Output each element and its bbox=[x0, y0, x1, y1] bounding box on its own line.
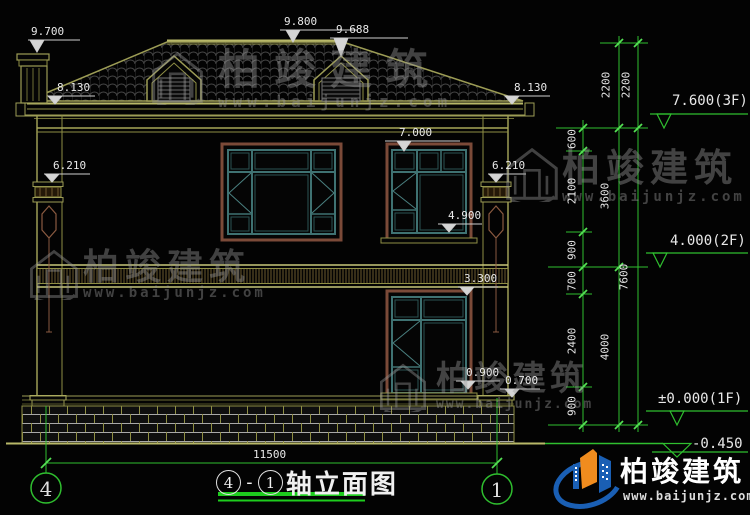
elevation-label-pilaster-l: 6.210 bbox=[53, 160, 86, 171]
axis-bubble-right: 1 bbox=[491, 478, 504, 502]
drawing-title: 4 - 1 轴立面图 bbox=[216, 464, 398, 501]
level-label-1f: ±0.000(1F) bbox=[658, 392, 742, 406]
roof bbox=[16, 41, 534, 119]
window-2f-right bbox=[381, 144, 477, 243]
floor-band bbox=[37, 265, 508, 287]
brand-name: 柏竣建筑 bbox=[620, 450, 744, 490]
elevation-label-w2-head: 7.000 bbox=[399, 127, 432, 138]
dim-total-7600: 7600 bbox=[619, 264, 630, 291]
dim-total-2200: 2200 bbox=[621, 72, 632, 99]
brand-logo-icon bbox=[550, 449, 626, 514]
dim-floor-3600: 3600 bbox=[600, 183, 611, 210]
level-label-3f: 7.600(3F) bbox=[672, 94, 748, 108]
elevation-label-eave-left: 8.130 bbox=[57, 82, 90, 93]
dim-fine-900b: 900 bbox=[567, 396, 578, 416]
axis-bubble-left: 4 bbox=[40, 477, 53, 501]
plinth bbox=[6, 396, 663, 444]
dimension-chains-right bbox=[548, 36, 648, 432]
dim-overall-width: 11500 bbox=[253, 449, 286, 460]
title-axis-start: 4 bbox=[216, 470, 241, 495]
brand-url: www.baijunjz.com bbox=[623, 489, 750, 503]
title-text: 轴立面图 bbox=[286, 464, 398, 501]
elevation-label-w1-head: 3.300 bbox=[464, 273, 497, 284]
title-dash: - bbox=[244, 472, 255, 493]
cad-linework bbox=[0, 0, 750, 515]
title-axis-end: 1 bbox=[258, 470, 283, 495]
level-label-2f: 4.000(2F) bbox=[670, 234, 746, 248]
dim-fine-600: 600 bbox=[567, 129, 578, 149]
dim-floor-4000: 4000 bbox=[600, 334, 611, 361]
elevation-label-chimney: 9.700 bbox=[31, 26, 64, 37]
level-label-ground: -0.450 bbox=[692, 437, 743, 451]
elevation-label-pedestal: 0.700 bbox=[505, 375, 538, 386]
elevation-label-eave-right: 8.130 bbox=[514, 82, 547, 93]
dim-fine-2400: 2400 bbox=[567, 328, 578, 355]
dim-fine-700: 700 bbox=[567, 271, 578, 291]
elevation-label-w1-sill: 0.900 bbox=[466, 367, 499, 378]
elevation-label-pilaster-r: 6.210 bbox=[492, 160, 525, 171]
window-2f-center bbox=[222, 144, 341, 240]
elevation-drawing-canvas: 柏竣建筑 www.baijunjz.com 柏竣建筑 www.baijunjz.… bbox=[0, 0, 750, 515]
elevation-label-w2-sill: 4.900 bbox=[448, 210, 481, 221]
elevation-label-dormer: 9.688 bbox=[336, 24, 369, 35]
dim-fine-900a: 900 bbox=[567, 240, 578, 260]
dim-fine-2100: 2100 bbox=[567, 178, 578, 205]
dim-floor-2200: 2200 bbox=[601, 72, 612, 99]
chimney bbox=[17, 54, 49, 103]
elevation-label-ridge: 9.800 bbox=[284, 16, 317, 27]
